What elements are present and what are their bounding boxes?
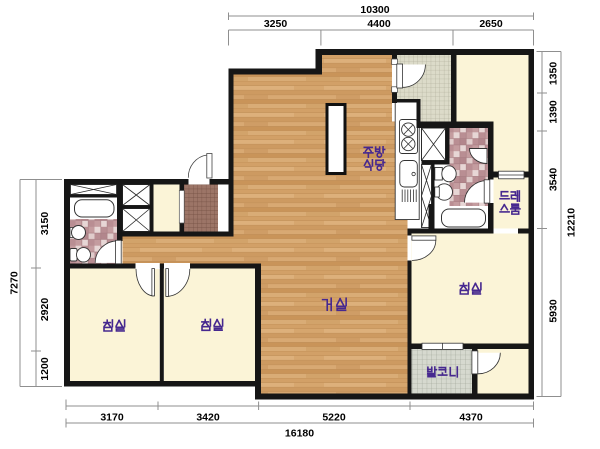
svg-text:16180: 16180 <box>285 428 314 440</box>
svg-text:4400: 4400 <box>367 18 391 30</box>
svg-text:3420: 3420 <box>196 412 220 424</box>
svg-text:3540: 3540 <box>548 168 560 192</box>
svg-text:12210: 12210 <box>566 208 578 237</box>
svg-text:7270: 7270 <box>9 271 21 295</box>
svg-text:4370: 4370 <box>459 412 483 424</box>
svg-text:5220: 5220 <box>322 412 346 424</box>
svg-text:2650: 2650 <box>479 18 503 30</box>
svg-text:3150: 3150 <box>39 212 51 236</box>
svg-text:2920: 2920 <box>39 298 51 322</box>
svg-text:1350: 1350 <box>548 62 560 86</box>
svg-text:1200: 1200 <box>39 357 51 381</box>
svg-text:10300: 10300 <box>360 4 389 16</box>
svg-text:3250: 3250 <box>264 18 288 30</box>
svg-text:1390: 1390 <box>548 100 560 124</box>
svg-text:5930: 5930 <box>548 299 560 323</box>
svg-text:3170: 3170 <box>100 412 124 424</box>
